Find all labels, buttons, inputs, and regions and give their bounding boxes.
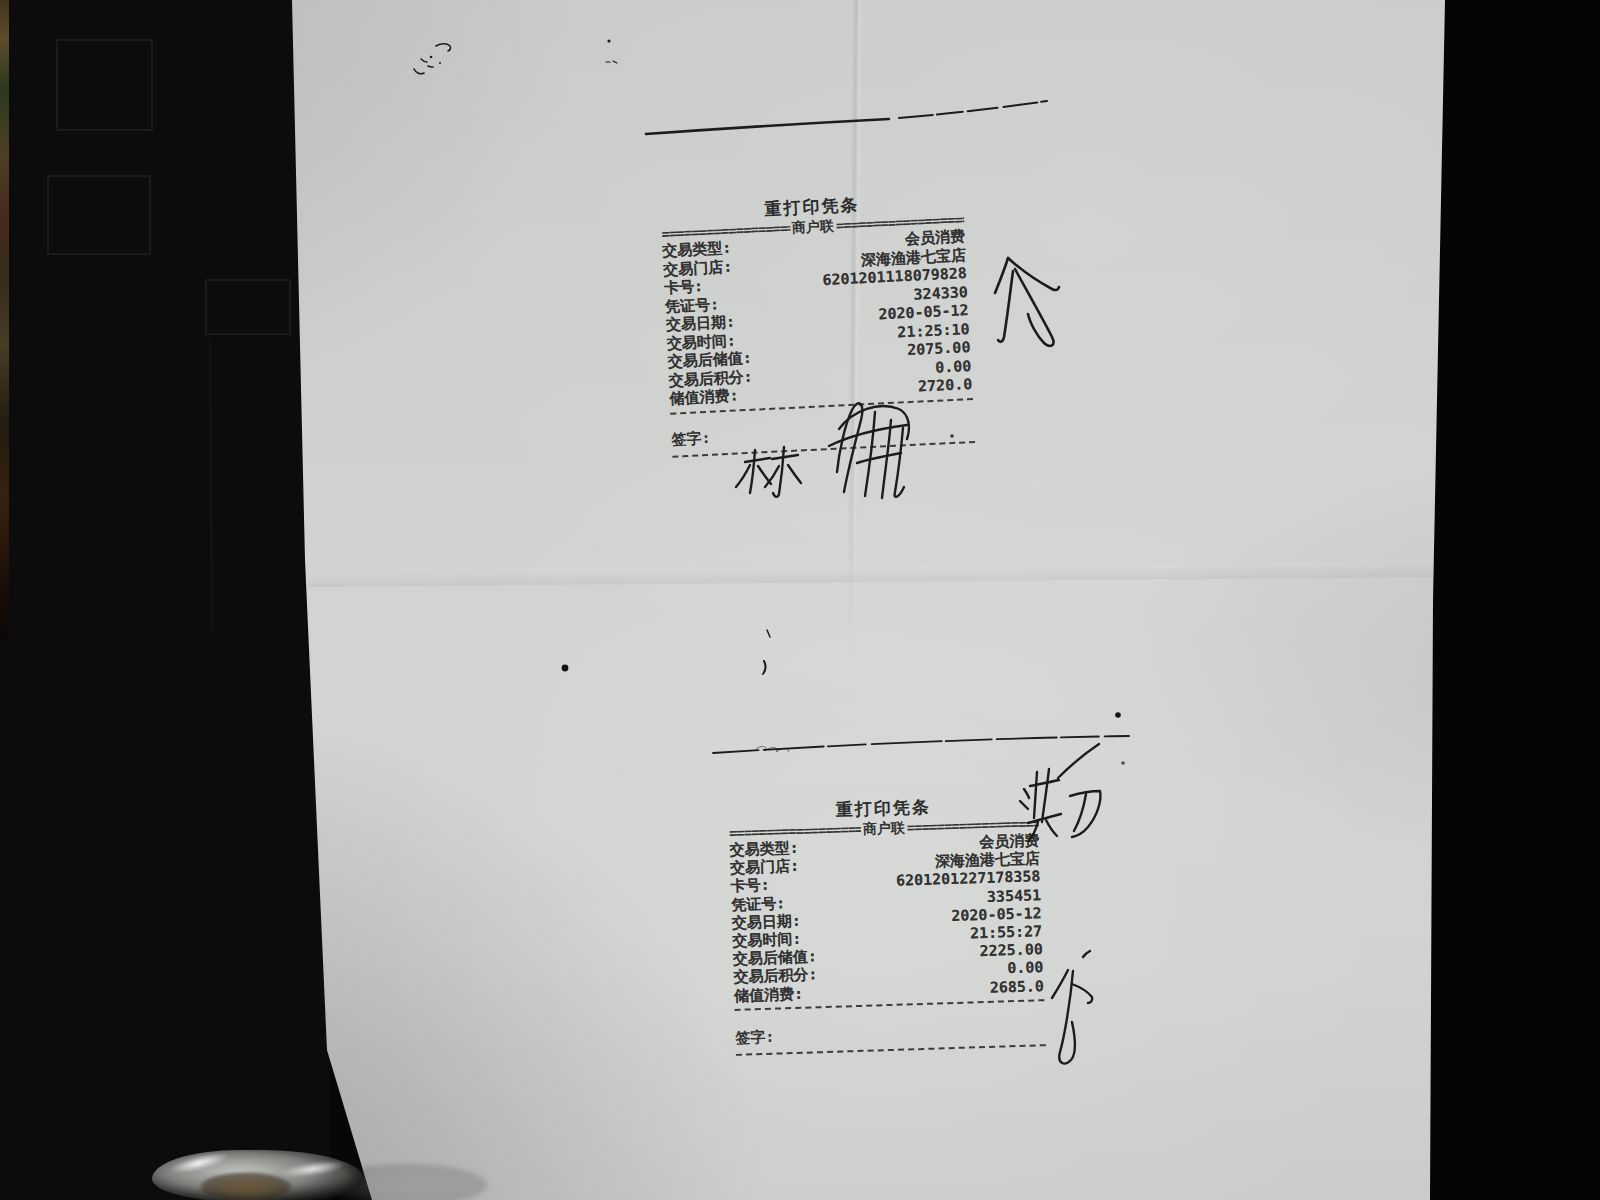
field-value: 0.00 [1007,959,1044,978]
sign-label: 签字: [735,1027,775,1047]
field-value: 335451 [987,886,1042,906]
field-label: 凭证号: [731,894,786,914]
field-label: 储值消费: [669,386,739,408]
dark-background-right [1430,0,1600,1200]
copy-label: 商户联 [861,819,907,836]
field-value: 2685.0 [989,977,1044,997]
dark-background-left [0,0,330,1200]
receipt-photo: 重打印凭条 ==================== 商户联 =========… [0,0,1600,1200]
field-value: 2225.00 [979,940,1043,960]
field-value: 0.00 [935,356,972,376]
field-label: 交易后积分: [733,966,818,987]
field-value: 2720.0 [918,375,973,396]
receipt-top: 重打印凭条 ==================== 商户联 =========… [660,188,975,457]
table-edge-strip [0,0,9,640]
signature-line: 签字: [735,1019,1046,1056]
copy-label: 商户联 [789,217,836,235]
field-label: 卡号: [664,277,704,297]
plastic-wrap-object [152,1136,412,1200]
sign-label: 签字: [671,428,711,449]
field-value: 会员消费 [979,831,1040,851]
receipt-bottom: 重打印凭条 ==================== 商户联 =========… [728,792,1046,1055]
field-value: 21:55:27 [970,922,1043,942]
field-label: 交易门店: [663,257,733,279]
field-label: 交易门店: [730,857,800,877]
field-label: 卡号: [730,876,770,895]
field-label: 交易日期: [732,912,802,932]
paper-fold-crease-horizontal [308,561,1438,587]
signature-line: 签字: [671,415,975,457]
plastic-wrap-contents [200,1172,292,1200]
field-label: 储值消费: [734,984,804,1004]
